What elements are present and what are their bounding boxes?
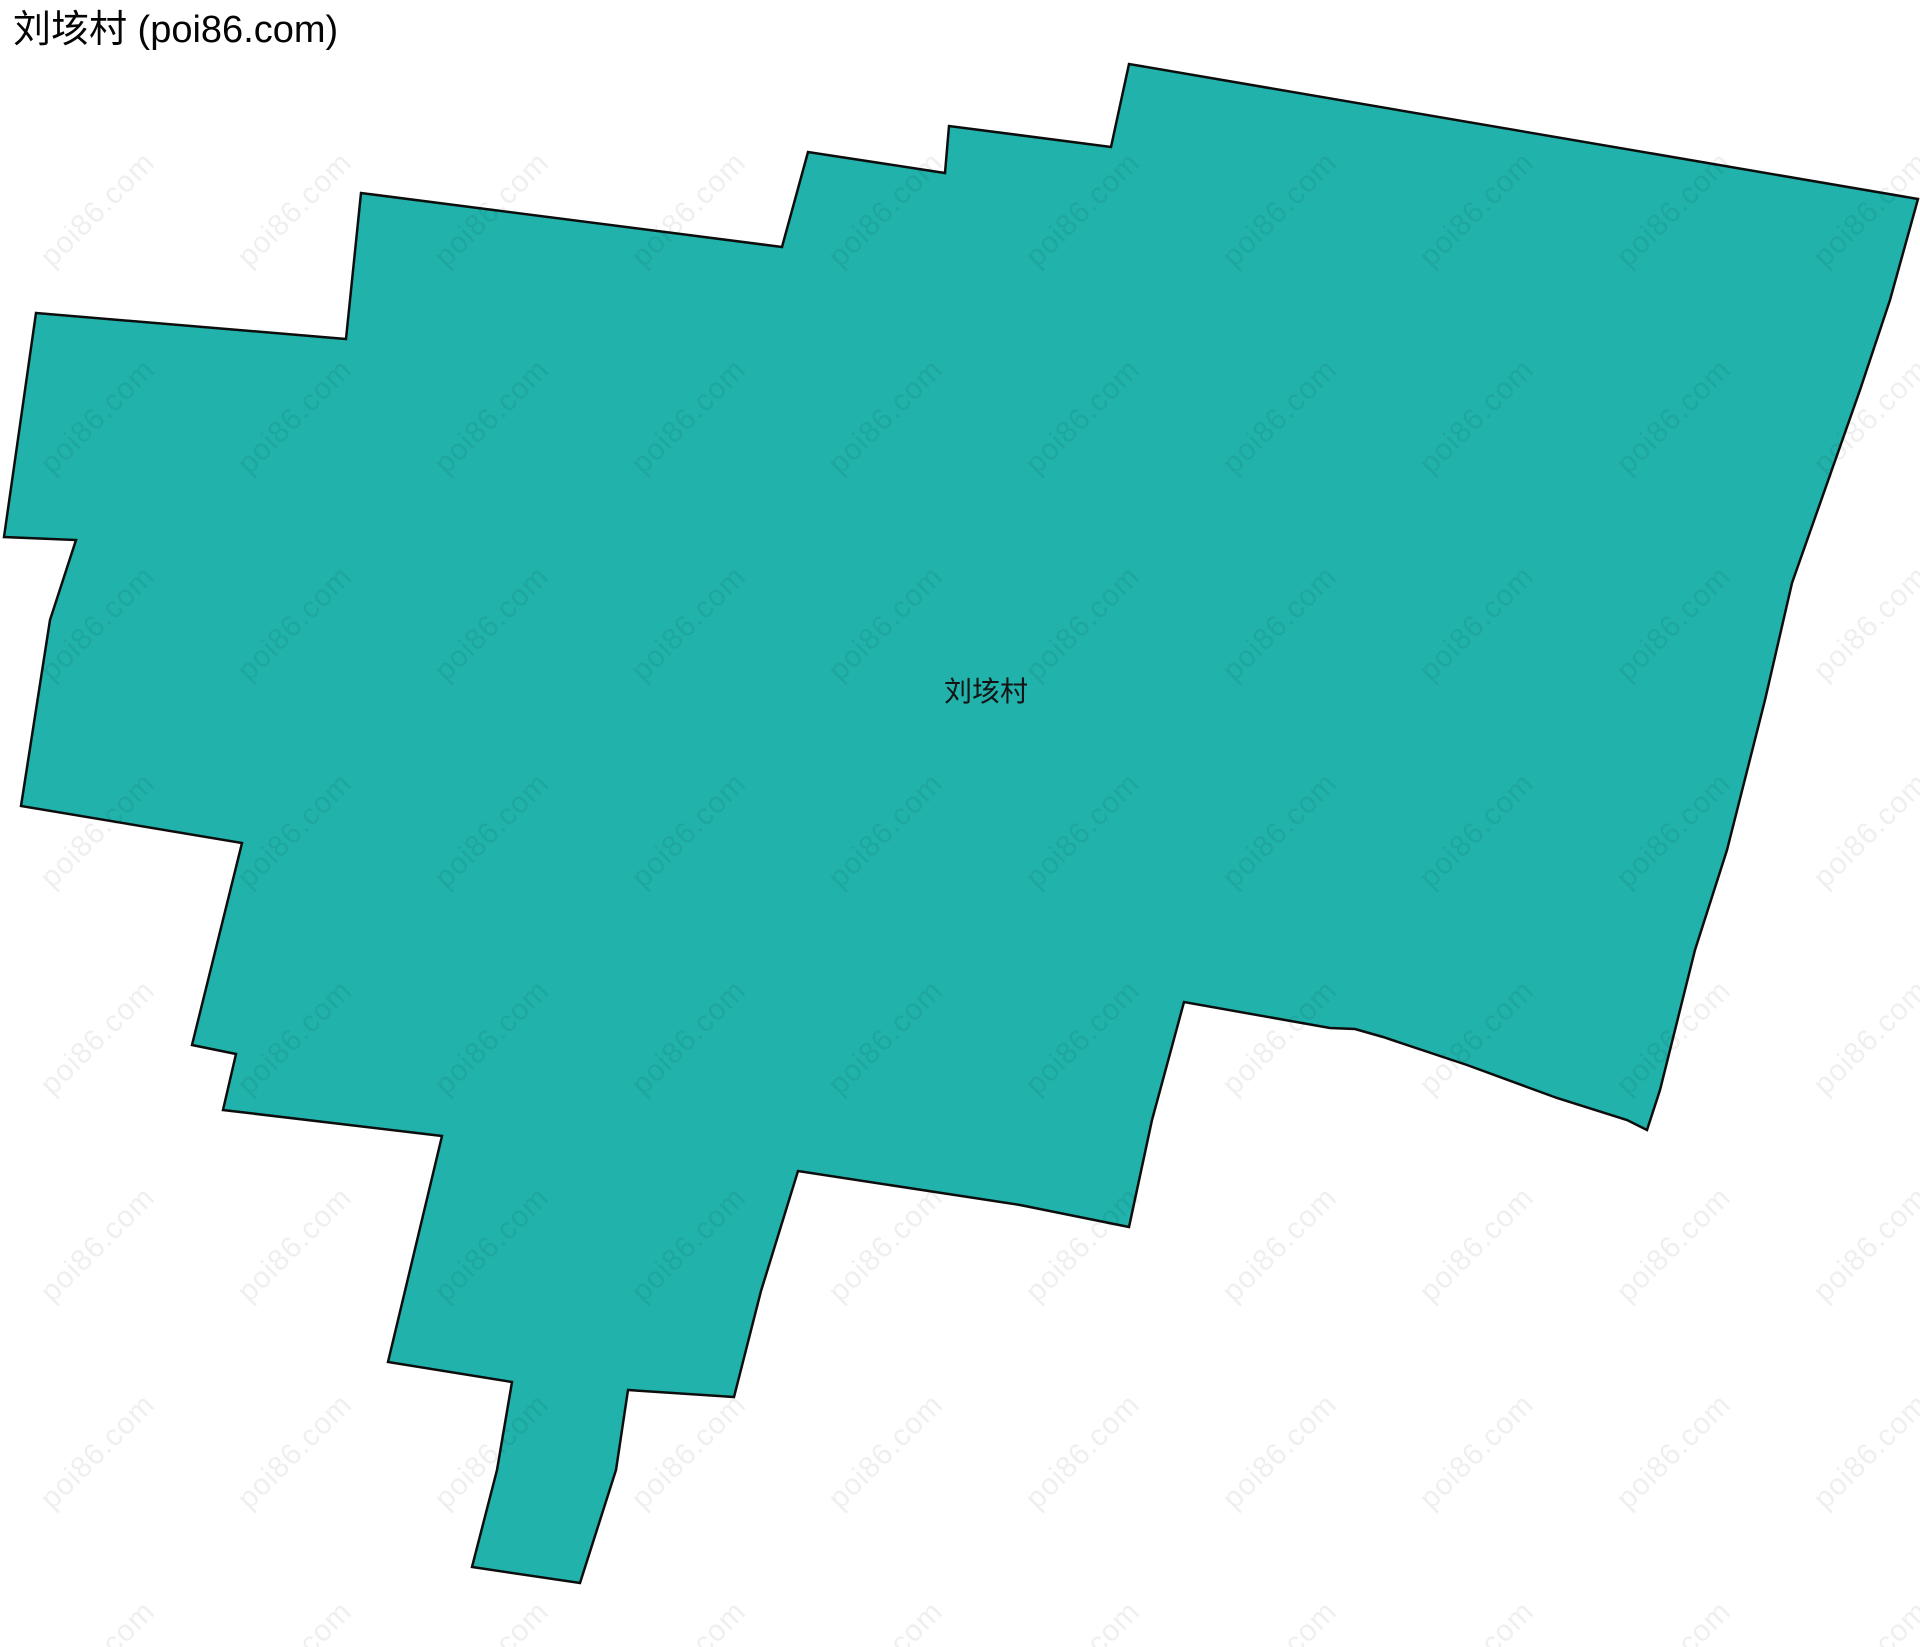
page-title: 刘垓村 (poi86.com) — [13, 8, 338, 54]
map-page: poi86.compoi86.compoi86.compoi86.compoi8… — [0, 0, 1920, 1647]
village-region-label: 刘垓村 — [944, 670, 1028, 710]
village-boundary-polygon — [4, 64, 1918, 1583]
map-canvas — [0, 0, 1920, 1647]
